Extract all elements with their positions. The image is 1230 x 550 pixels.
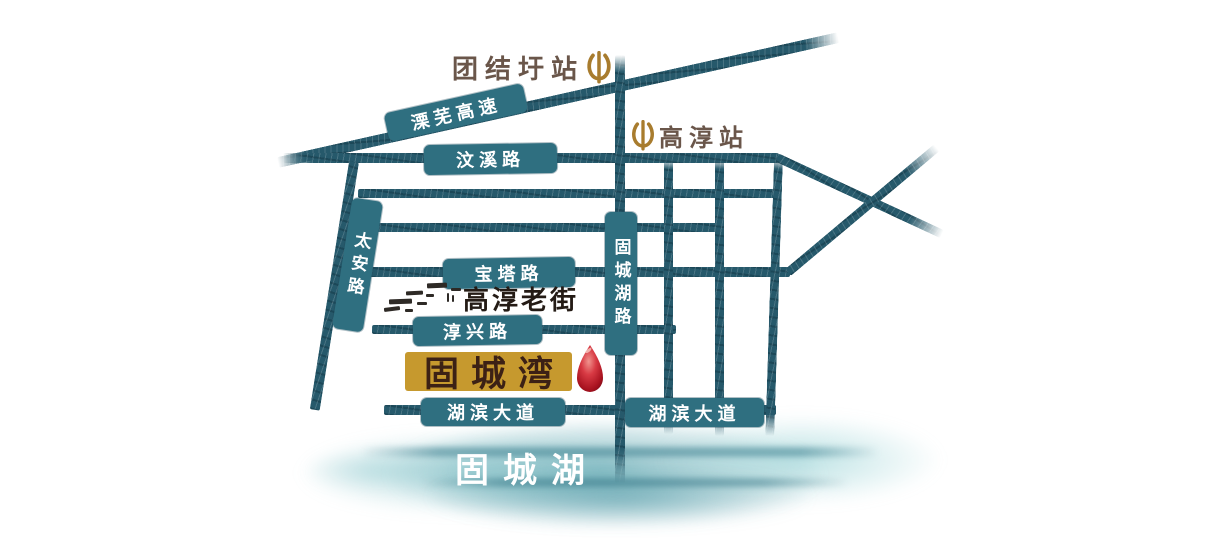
chunxing-road-label: 淳兴路 <box>413 315 542 346</box>
guchenghu-road-label: 固城湖路 <box>605 212 637 355</box>
old-street-sketch <box>417 302 427 305</box>
resort-badge: 固城湾 <box>405 352 572 391</box>
old-street-sketch <box>384 306 400 312</box>
baota-road <box>366 267 790 277</box>
hubin-avenue-west-label-text: 湖滨大道 <box>447 399 539 425</box>
hubin-avenue-west-label: 湖滨大道 <box>421 398 565 426</box>
tuanjiewei-station-label: 团结圩站 <box>452 49 584 86</box>
guchenghu-road-label-text: 固城湖路 <box>609 238 634 330</box>
grid-road-vertical <box>715 158 724 436</box>
old-street-sketch <box>406 291 423 296</box>
gaochun-station: 高淳站 <box>630 118 749 153</box>
old-street-sketch <box>447 293 449 302</box>
map-pin-icon <box>572 342 608 398</box>
old-street-sketch <box>451 288 461 291</box>
chunxing-road-label-text: 淳兴路 <box>443 317 512 344</box>
old-street-sketch <box>427 283 447 289</box>
east-slant-road <box>765 158 783 436</box>
hubin-avenue-east-label: 湖滨大道 <box>625 398 764 427</box>
tuanjiewei-station: 团结圩站 <box>452 49 613 86</box>
wenxi-road-label: 汶溪路 <box>424 143 558 175</box>
wenxi-road-label-text: 汶溪路 <box>456 145 525 172</box>
old-street-sketch <box>405 309 413 312</box>
hand-drawn-map: 溧芜高速 汶溪路 太安路 固城湖路 宝塔路 淳兴路 湖滨大道 湖滨大道 团结圩站… <box>0 0 1230 550</box>
expressway-label: 溧芜高速 <box>384 83 529 142</box>
resort-badge-text: 固城湾 <box>424 346 565 397</box>
old-street-sketch <box>389 299 412 305</box>
gaochun-station-label: 高淳站 <box>659 118 749 153</box>
taian-road-label-text: 太安路 <box>340 229 375 301</box>
old-street-sketch <box>452 295 454 302</box>
southeast-diagonal-road <box>785 144 939 276</box>
railway-logo-icon <box>630 120 656 151</box>
old-street-sketch <box>426 294 434 297</box>
grid-road-vertical <box>664 158 673 434</box>
old-street-label: 高淳老街 <box>463 280 579 317</box>
hubin-avenue-east-label-text: 湖滨大道 <box>649 400 741 426</box>
lake-label: 固城湖 <box>455 443 599 492</box>
railway-logo-icon <box>585 51 613 84</box>
